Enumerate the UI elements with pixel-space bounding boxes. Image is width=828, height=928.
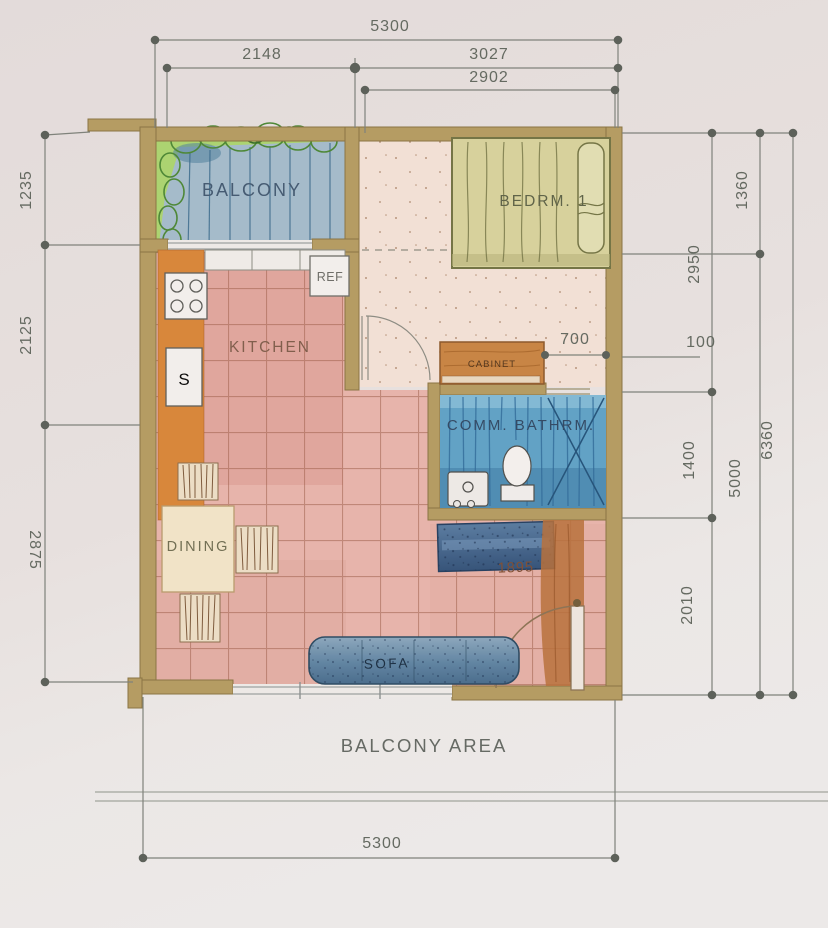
floor-plan-canvas: BALCONY [0, 0, 828, 928]
photo-tint [0, 0, 828, 928]
floor-plan-photo: BALCONY [0, 0, 828, 928]
